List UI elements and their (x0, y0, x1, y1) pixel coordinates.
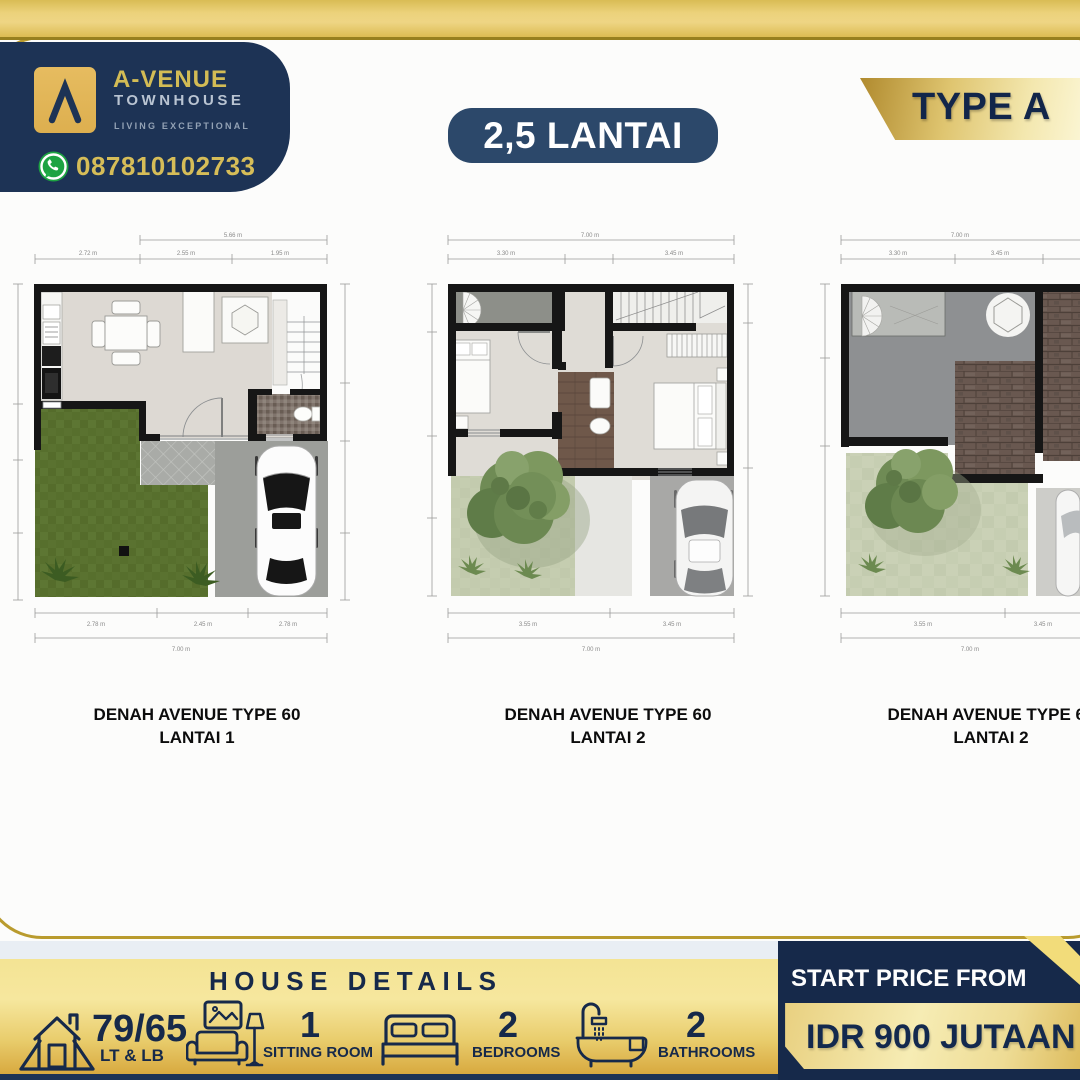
svg-text:7.00 m: 7.00 m (961, 647, 979, 653)
svg-text:3.45 m: 3.45 m (663, 622, 681, 628)
svg-text:1.95 m: 1.95 m (271, 251, 289, 257)
svg-text:7.00 m: 7.00 m (951, 233, 969, 239)
svg-text:2.78 m: 2.78 m (279, 622, 297, 628)
svg-text:3.45 m: 3.45 m (665, 251, 683, 257)
svg-text:3.45 m: 3.45 m (991, 251, 1009, 257)
svg-text:2.45 m: 2.45 m (194, 622, 212, 628)
svg-text:3.45 m: 3.45 m (1034, 622, 1052, 628)
svg-text:3.30 m: 3.30 m (497, 251, 515, 257)
svg-text:3.55 m: 3.55 m (914, 622, 932, 628)
svg-text:2.72 m: 2.72 m (79, 251, 97, 257)
svg-text:7.00 m: 7.00 m (172, 647, 190, 653)
svg-text:7.00 m: 7.00 m (581, 233, 599, 239)
svg-text:5.66 m: 5.66 m (224, 233, 242, 239)
svg-text:3.30 m: 3.30 m (889, 251, 907, 257)
svg-text:2.78 m: 2.78 m (87, 622, 105, 628)
svg-text:2.55 m: 2.55 m (177, 251, 195, 257)
svg-text:3.55 m: 3.55 m (519, 622, 537, 628)
svg-text:7.00 m: 7.00 m (582, 647, 600, 653)
